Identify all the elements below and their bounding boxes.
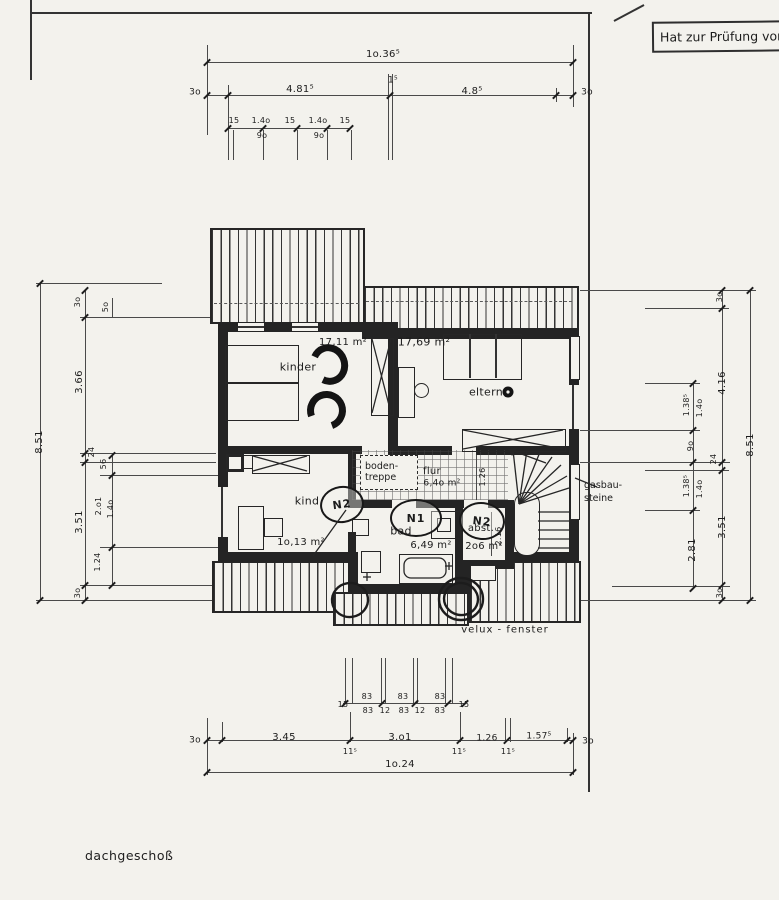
rooms-label: kinder bbox=[280, 362, 316, 373]
rooms-label: eltern bbox=[469, 387, 503, 398]
dims_bottom-label: 1o.24 bbox=[385, 760, 415, 770]
dims_top-label: 1⁵ bbox=[388, 77, 398, 86]
dims_right-label: 1.38⁵ bbox=[683, 475, 691, 498]
drawing-sheet: Hat zur Prüfung vor bbox=[0, 0, 779, 900]
dims_top-label: 4.81⁵ bbox=[286, 85, 314, 95]
rooms-label: 17,69 m² bbox=[398, 337, 451, 348]
dims_bottom-label: 12 bbox=[380, 707, 391, 715]
dims_top-label: 3o bbox=[189, 89, 201, 98]
dims_left-label: 3.51 bbox=[75, 510, 85, 533]
dims_left-label: 3o bbox=[74, 297, 82, 308]
dims_left-label: 5o bbox=[102, 302, 110, 313]
notes-label: 1.26 bbox=[479, 467, 487, 486]
dims_top-label: 15 bbox=[285, 117, 296, 125]
dims_bottom-label: 83 bbox=[362, 693, 373, 701]
dims_left-label: 1.24 bbox=[94, 552, 102, 571]
dims_top-label: 15 bbox=[229, 117, 240, 125]
rooms-label: 6,4o m² bbox=[423, 480, 460, 489]
dims_top-label: 15 bbox=[340, 117, 351, 125]
dims_right-label: 1.4o bbox=[696, 480, 704, 499]
dims_left-label: 3o bbox=[74, 588, 82, 599]
dims_right-label: 4.16 bbox=[718, 371, 728, 394]
dims_bottom-label: 15 bbox=[459, 701, 470, 709]
labels-layer: 1o.36⁵3o4.81⁵1⁵4.8⁵3o151.4o151.4o159o9o8… bbox=[0, 0, 779, 900]
dims_top-label: 9o bbox=[314, 132, 325, 140]
dims_top-label: 3o bbox=[581, 89, 593, 98]
rooms-label: bad bbox=[390, 526, 412, 537]
dims_top-label: 1.4o bbox=[252, 117, 271, 125]
dims_bottom-label: 83 bbox=[398, 693, 409, 701]
dims_right-label: 9o bbox=[687, 441, 695, 452]
dims_right-label: 3o bbox=[716, 292, 724, 303]
dims_bottom-label: 3.o1 bbox=[388, 733, 411, 743]
dims_bottom-label: 83 bbox=[435, 707, 446, 715]
rooms-label: 6,49 m² bbox=[410, 541, 451, 551]
dims_bottom-label: 83 bbox=[399, 707, 410, 715]
dims_bottom-label: 11⁵ bbox=[452, 748, 466, 756]
dims_top-label: 9o bbox=[257, 132, 268, 140]
dims_left-label: 24 bbox=[88, 447, 96, 458]
notes-label: 2.16 bbox=[495, 526, 503, 545]
dims_left-label: 8.51 bbox=[35, 430, 45, 453]
rooms-label: kind bbox=[295, 496, 320, 507]
rooms-label: abst. bbox=[468, 524, 494, 534]
dims_bottom-label: 11⁵ bbox=[501, 748, 515, 756]
dims_left-label: 1.4o bbox=[107, 500, 115, 519]
dims_top-label: 1o.36⁵ bbox=[366, 50, 400, 60]
dims_left-label: 3.66 bbox=[75, 370, 85, 393]
dims_left-label: 56 bbox=[100, 459, 108, 470]
dims_bottom-label: 1.26 bbox=[476, 735, 497, 744]
dims_right-label: 3o bbox=[716, 588, 724, 599]
dims_bottom-label: 1.57⁵ bbox=[526, 733, 551, 742]
dims_right-label: 1.38⁵ bbox=[683, 394, 691, 417]
dims_right-label: 3.51 bbox=[718, 515, 728, 538]
rooms-label: flur bbox=[423, 467, 441, 477]
rooms-label: 17,11 m² bbox=[319, 338, 367, 348]
dims_bottom-label: 11⁵ bbox=[343, 748, 357, 756]
dims_left-label: 2.o1 bbox=[95, 497, 103, 516]
dims_bottom-label: 3.45 bbox=[272, 733, 295, 743]
dims_bottom-label: 83 bbox=[435, 693, 446, 701]
dims_bottom-label: 83 bbox=[363, 707, 374, 715]
dims_right-label: 24 bbox=[710, 454, 718, 465]
dims_right-label: 8.51 bbox=[746, 433, 756, 456]
rooms-label: 1o,13 m² bbox=[277, 538, 325, 548]
dims_bottom-label: 15 bbox=[338, 701, 349, 709]
dims_bottom-label: 3o bbox=[582, 738, 594, 747]
dims_right-label: 2.81 bbox=[688, 538, 698, 561]
dims_right-label: 1.4o bbox=[696, 399, 704, 418]
dims_top-label: 1.4o bbox=[309, 117, 328, 125]
dims_bottom-label: 12 bbox=[415, 707, 426, 715]
dims_bottom-label: 3o bbox=[189, 737, 201, 746]
dims_top-label: 4.8⁵ bbox=[461, 87, 482, 97]
